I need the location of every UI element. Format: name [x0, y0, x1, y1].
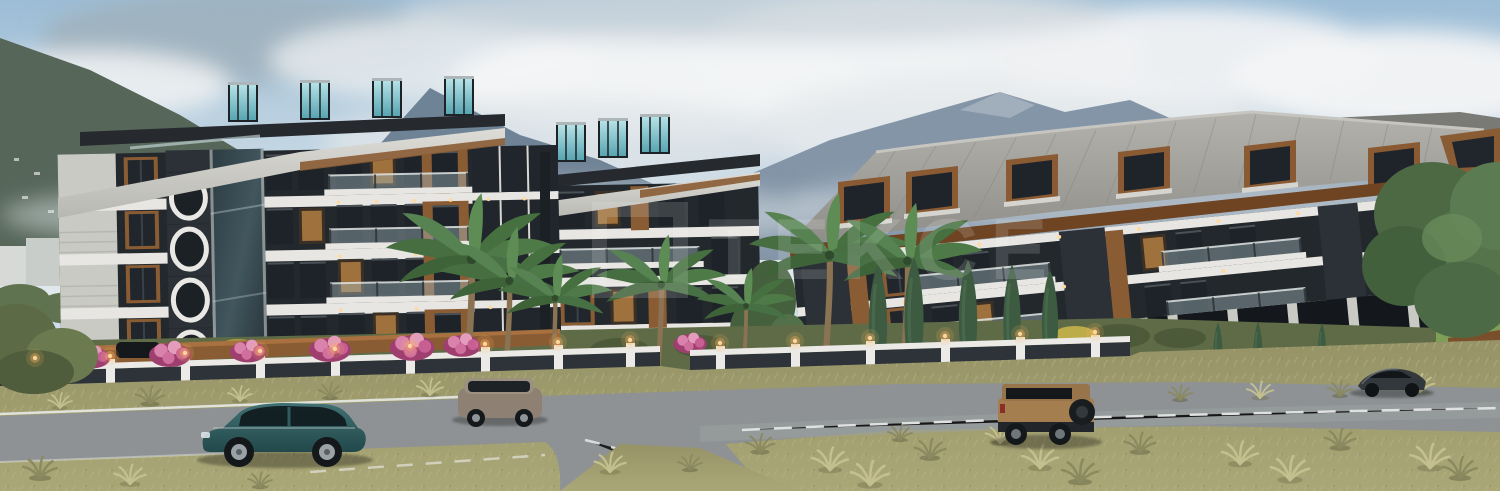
rooftop-glass-box	[228, 82, 258, 122]
tan-jeep	[990, 384, 1102, 449]
window	[126, 265, 161, 304]
rooftop-glass-box	[444, 76, 474, 116]
window	[267, 208, 294, 244]
window	[268, 262, 295, 298]
window	[711, 236, 738, 272]
gray-suv	[452, 378, 548, 427]
lit-window	[299, 208, 326, 244]
headlight	[201, 432, 210, 438]
rooftop-glass-box	[556, 122, 586, 162]
wheel	[1365, 383, 1379, 397]
rooftop-glass-box	[300, 80, 330, 120]
jeep-windows	[1006, 388, 1072, 399]
dormer-window	[1116, 146, 1172, 199]
taillight	[1000, 404, 1005, 413]
scene-canvas	[0, 0, 1500, 491]
car-windows	[468, 381, 530, 392]
rooftop-glass-box	[598, 118, 628, 158]
rooftop-glass-box	[372, 78, 402, 118]
balcony	[324, 173, 472, 196]
window	[125, 211, 160, 250]
dormer-window	[1004, 154, 1060, 207]
car-shadow	[197, 452, 373, 468]
porthole-window	[173, 280, 208, 321]
architectural-render-scene: TEKCE	[0, 0, 1500, 491]
balcony	[326, 281, 474, 304]
dormer-window	[1242, 140, 1298, 193]
porthole-window	[172, 229, 207, 270]
wheel	[1405, 383, 1419, 397]
window	[300, 262, 327, 298]
rooftop-glass-box	[640, 114, 670, 154]
